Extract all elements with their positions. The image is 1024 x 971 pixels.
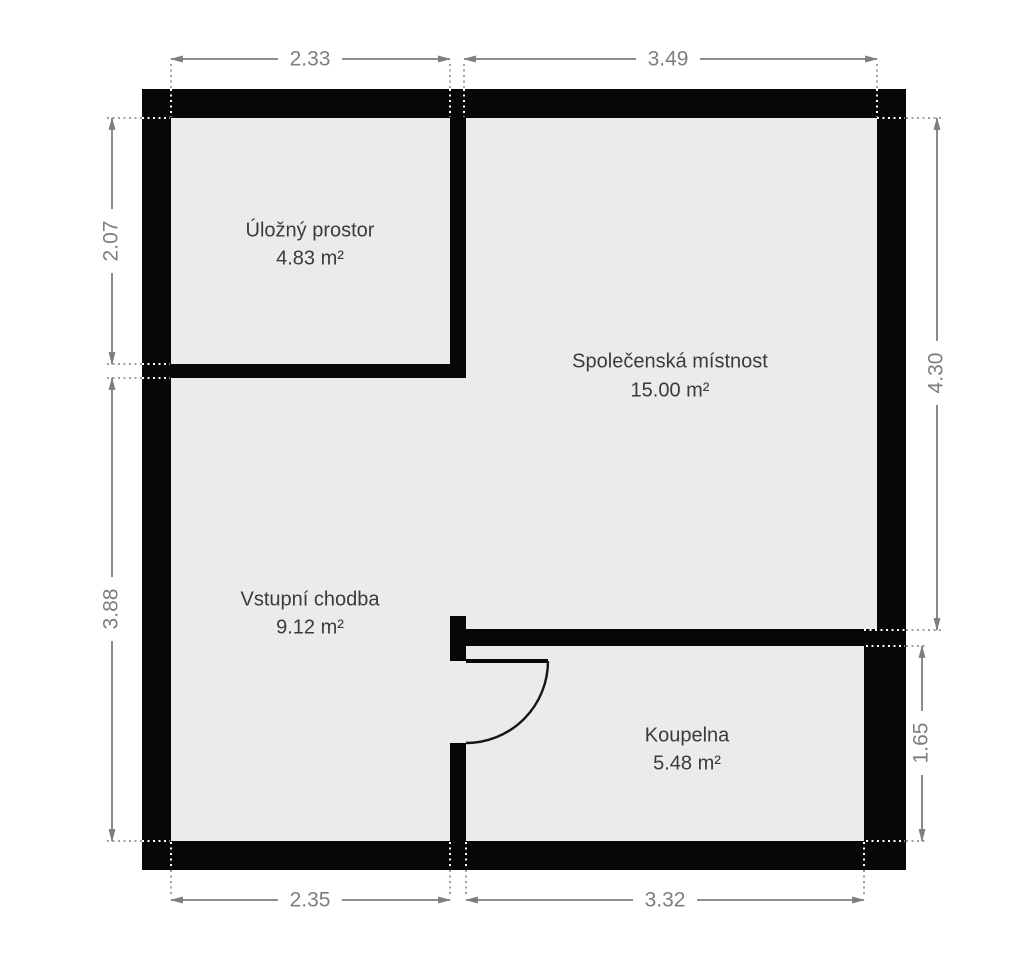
- wall-bathroom-left-lower: [450, 743, 466, 841]
- floor-plan-page: 2.33 3.49 2.35 3.32 2.07 3.88 4.30 1.65 …: [0, 0, 1024, 966]
- room-area-ulozny-prostor: 4.83 m²: [276, 247, 344, 269]
- room-name-vstupni-chodba: Vstupní chodba: [241, 588, 381, 610]
- dim-right-bottom: 1.65: [910, 723, 933, 764]
- room-name-ulozny-prostor: Úložný prostor: [246, 218, 375, 241]
- dim-top-right: 3.49: [648, 48, 689, 71]
- wall-outer-bottom: [142, 841, 906, 870]
- wall-storage-bottom: [171, 364, 466, 378]
- room-name-koupelna: Koupelna: [645, 724, 730, 746]
- wall-bathroom-left-upper: [450, 616, 466, 661]
- dim-left-top: 2.07: [100, 221, 123, 262]
- wall-bathroom-right-thick: [864, 629, 878, 841]
- room-area-koupelna: 5.48 m²: [653, 752, 721, 774]
- dim-right-top: 4.30: [925, 353, 948, 394]
- wall-storage-right: [450, 118, 466, 378]
- floor-plan-canvas: 2.33 3.49 2.35 3.32 2.07 3.88 4.30 1.65 …: [0, 0, 1024, 966]
- wall-outer-left: [142, 89, 171, 870]
- room-area-spolecenska-mistnost: 15.00 m²: [631, 379, 710, 401]
- dim-bottom-left: 2.35: [290, 889, 331, 912]
- wall-bathroom-top: [464, 629, 877, 646]
- room-name-spolecenska-mistnost: Společenská místnost: [572, 350, 768, 372]
- dim-bottom-right: 3.32: [645, 889, 686, 912]
- wall-outer-top: [142, 89, 906, 118]
- dim-top-left: 2.33: [290, 48, 331, 71]
- dim-left-bottom: 3.88: [100, 589, 123, 630]
- wall-outer-right: [877, 89, 906, 870]
- room-area-vstupni-chodba: 9.12 m²: [276, 616, 344, 638]
